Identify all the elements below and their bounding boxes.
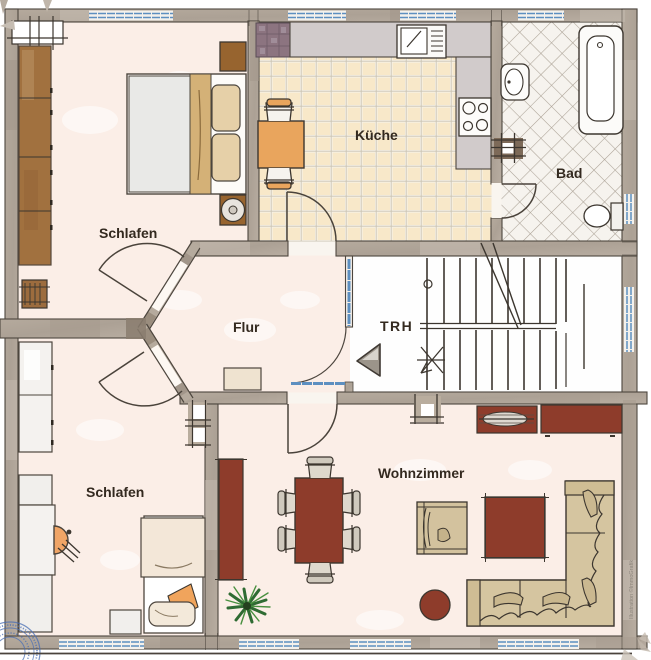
- svg-text:Wohnzimmer: Wohnzimmer: [378, 466, 465, 481]
- svg-text:Schlafen: Schlafen: [86, 484, 144, 500]
- svg-text:Küche: Küche: [355, 127, 398, 143]
- svg-text:Schlafen: Schlafen: [99, 225, 157, 241]
- svg-text:Illustration ©ImmoGrafik: Illustration ©ImmoGrafik: [628, 560, 635, 619]
- svg-text:Flur: Flur: [233, 319, 260, 335]
- svg-text:Bad: Bad: [556, 165, 582, 181]
- svg-text:TRH: TRH: [380, 318, 413, 334]
